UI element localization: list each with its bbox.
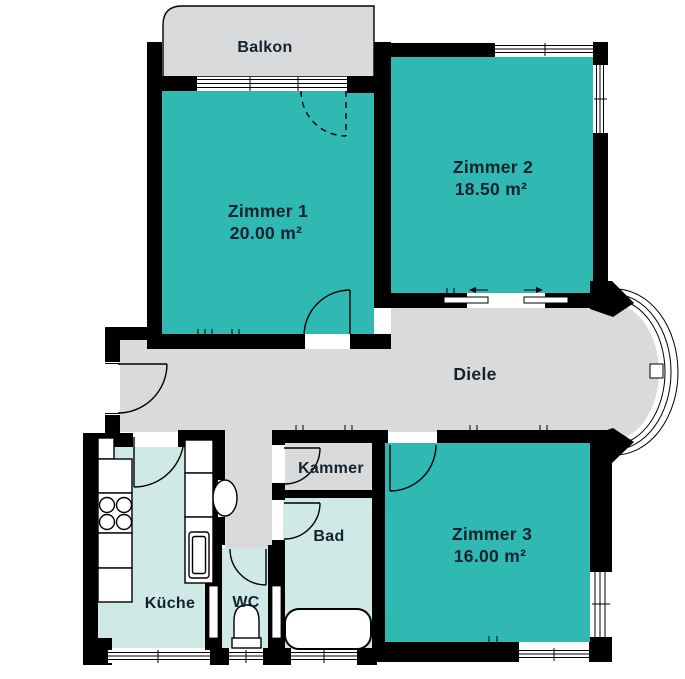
label-balkon: Balkon xyxy=(237,39,292,56)
label-diele: Diele xyxy=(453,364,496,384)
bathtub xyxy=(285,609,371,649)
window-kueche-bottom xyxy=(108,650,210,663)
stove-burner xyxy=(100,498,115,513)
label-kammer: Kammer xyxy=(298,460,364,477)
window-zimmer3-bottom xyxy=(519,648,589,661)
entrance-opening xyxy=(105,362,120,415)
window-balcony xyxy=(197,77,347,91)
kitchen-counter-left xyxy=(98,438,132,602)
window-zimmer3-right xyxy=(591,572,611,637)
wc-right-niche xyxy=(272,586,281,638)
window-wc-bottom xyxy=(229,650,263,663)
label-zimmer2: Zimmer 2 xyxy=(453,157,533,177)
area-zimmer3: 16.00 m² xyxy=(454,546,526,566)
stove-burner xyxy=(117,498,132,513)
window-zimmer2-top xyxy=(495,43,593,56)
hall-basin xyxy=(213,480,237,516)
area-zimmer2: 18.50 m² xyxy=(455,179,527,199)
window-zimmer2-right xyxy=(593,65,608,133)
toilet xyxy=(232,605,261,648)
kitchen-counter-right xyxy=(185,440,213,583)
label-zimmer3: Zimmer 3 xyxy=(452,524,532,544)
label-zimmer1: Zimmer 1 xyxy=(228,201,308,221)
stove-burner xyxy=(117,515,132,530)
label-bad: Bad xyxy=(313,528,344,545)
floor-plan: Balkon Zimmer 1 20.00 m² Zimmer 2 18.50 … xyxy=(0,0,685,679)
label-kueche: Küche xyxy=(145,595,195,612)
wc-left-niche xyxy=(209,586,218,638)
window-bad-bottom xyxy=(291,650,357,663)
stove-burner xyxy=(100,515,115,530)
floor-plan-canvas: Balkon Zimmer 1 20.00 m² Zimmer 2 18.50 … xyxy=(0,0,685,679)
label-wc: WC xyxy=(232,594,259,611)
area-zimmer1: 20.00 m² xyxy=(230,223,302,243)
